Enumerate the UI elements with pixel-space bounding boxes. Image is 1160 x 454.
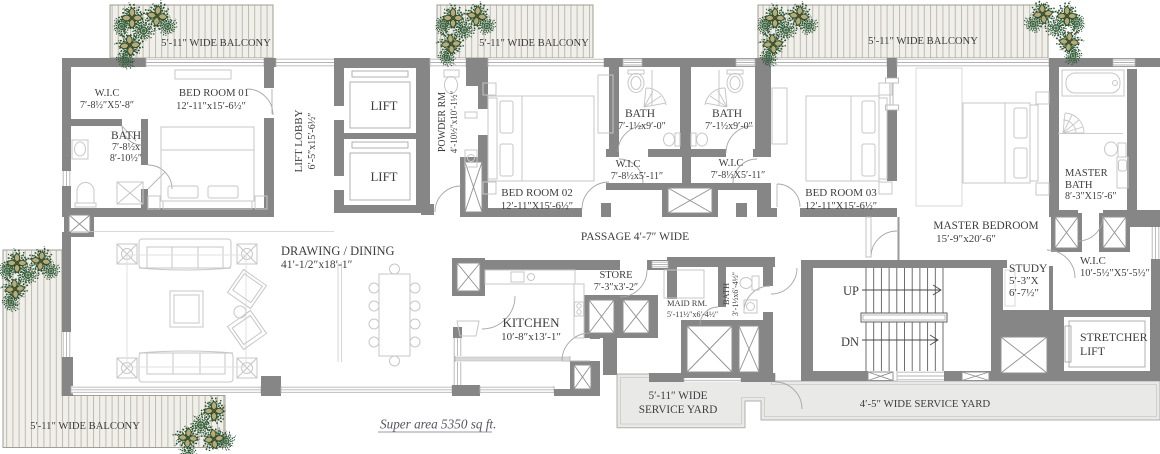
svg-text:W.I.C: W.I.C bbox=[719, 158, 744, 169]
svg-text:3′-1½x6′-4½″: 3′-1½x6′-4½″ bbox=[731, 272, 740, 316]
svg-text:BATH: BATH bbox=[111, 130, 141, 142]
svg-text:BED ROOM 03: BED ROOM 03 bbox=[805, 187, 877, 199]
svg-text:MASTER: MASTER bbox=[1065, 168, 1108, 179]
svg-text:W.I.C: W.I.C bbox=[95, 88, 120, 99]
svg-text:12′-11″x15′-6½″: 12′-11″x15′-6½″ bbox=[176, 101, 246, 112]
svg-text:7′-8½x5′-11″: 7′-8½x5′-11″ bbox=[611, 171, 663, 182]
svg-text:MASTER BEDROOM: MASTER BEDROOM bbox=[933, 220, 1038, 232]
svg-text:5′-11″ WIDE BALCONY: 5′-11″ WIDE BALCONY bbox=[30, 421, 140, 432]
svg-text:BATH: BATH bbox=[721, 283, 731, 305]
svg-text:7′-8½X5′-11″: 7′-8½X5′-11″ bbox=[711, 170, 766, 181]
svg-text:BATH: BATH bbox=[712, 108, 742, 120]
svg-text:BATH: BATH bbox=[1065, 180, 1093, 191]
svg-text:UP: UP bbox=[843, 284, 859, 298]
svg-text:BED ROOM 02: BED ROOM 02 bbox=[501, 187, 573, 199]
svg-text:DRAWING / DINING: DRAWING / DINING bbox=[281, 244, 395, 258]
svg-text:LIFT: LIFT bbox=[1080, 344, 1106, 358]
svg-text:10′-8″x13′-1″: 10′-8″x13′-1″ bbox=[501, 331, 561, 343]
svg-text:MAID RM.: MAID RM. bbox=[667, 298, 707, 308]
svg-text:6′-7½″: 6′-7½″ bbox=[1009, 287, 1039, 299]
svg-text:STORE: STORE bbox=[599, 270, 632, 281]
svg-text:SERVICE YARD: SERVICE YARD bbox=[639, 404, 718, 416]
svg-text:8′-10½″: 8′-10½″ bbox=[110, 153, 142, 164]
svg-text:PASSAGE 4′-7″ WIDE: PASSAGE 4′-7″ WIDE bbox=[581, 231, 689, 243]
svg-text:12′-11″X15′-6½″: 12′-11″X15′-6½″ bbox=[501, 201, 573, 212]
svg-text:LIFT: LIFT bbox=[370, 99, 397, 113]
svg-text:DN: DN bbox=[841, 335, 859, 349]
svg-text:15′-9″x20′-6″: 15′-9″x20′-6″ bbox=[936, 233, 996, 245]
svg-text:5′-3″X: 5′-3″X bbox=[1009, 275, 1039, 287]
svg-text:8′-3″X15′-6″: 8′-3″X15′-6″ bbox=[1065, 191, 1117, 202]
svg-text:7′-3″x3′-2″: 7′-3″x3′-2″ bbox=[594, 282, 638, 293]
svg-text:Super area 5350 sq ft.: Super area 5350 sq ft. bbox=[380, 417, 496, 432]
svg-text:W.I.C: W.I.C bbox=[616, 159, 641, 170]
svg-text:STRETCHER: STRETCHER bbox=[1080, 330, 1148, 344]
svg-text:4′-10½″x10′-1½″: 4′-10½″x10′-1½″ bbox=[449, 91, 459, 154]
svg-text:KITCHEN: KITCHEN bbox=[502, 315, 560, 330]
svg-text:4′-5″ WIDE SERVICE YARD: 4′-5″ WIDE SERVICE YARD bbox=[860, 398, 991, 410]
svg-text:7′-1½x9′-0″: 7′-1½x9′-0″ bbox=[705, 121, 753, 132]
svg-text:7′-1½x9′-0″: 7′-1½x9′-0″ bbox=[618, 121, 666, 132]
svg-text:5′-11½″x6′-4½″: 5′-11½″x6′-4½″ bbox=[667, 310, 718, 319]
svg-text:12′-11″X15′-6½″: 12′-11″X15′-6½″ bbox=[805, 201, 877, 212]
svg-text:6′-5″x15′-6½″: 6′-5″x15′-6½″ bbox=[307, 113, 318, 170]
svg-text:LIFT: LIFT bbox=[370, 170, 397, 184]
svg-text:POWDER RM: POWDER RM bbox=[437, 92, 448, 152]
svg-text:LIFT LOBBY: LIFT LOBBY bbox=[293, 109, 305, 172]
svg-text:5′-11″ WIDE BALCONY: 5′-11″ WIDE BALCONY bbox=[868, 36, 978, 47]
svg-text:BED ROOM 01: BED ROOM 01 bbox=[179, 87, 249, 99]
svg-text:5′-11″ WIDE BALCONY: 5′-11″ WIDE BALCONY bbox=[161, 38, 271, 49]
svg-text:10′-5½″X5′-5½″: 10′-5½″X5′-5½″ bbox=[1080, 268, 1150, 279]
svg-text:BATH: BATH bbox=[625, 108, 655, 120]
svg-text:5′-11″ WIDE: 5′-11″ WIDE bbox=[649, 390, 708, 402]
svg-text:7′-8½x: 7′-8½x bbox=[112, 142, 140, 153]
svg-text:41′-1/2″x18′-1″: 41′-1/2″x18′-1″ bbox=[281, 259, 353, 271]
svg-text:W.I.C: W.I.C bbox=[1080, 255, 1106, 267]
svg-text:7′-8½″X5′-8″: 7′-8½″X5′-8″ bbox=[80, 100, 134, 111]
svg-text:STUDY: STUDY bbox=[1009, 263, 1048, 275]
svg-text:5′-11″ WIDE BALCONY: 5′-11″ WIDE BALCONY bbox=[479, 38, 589, 49]
